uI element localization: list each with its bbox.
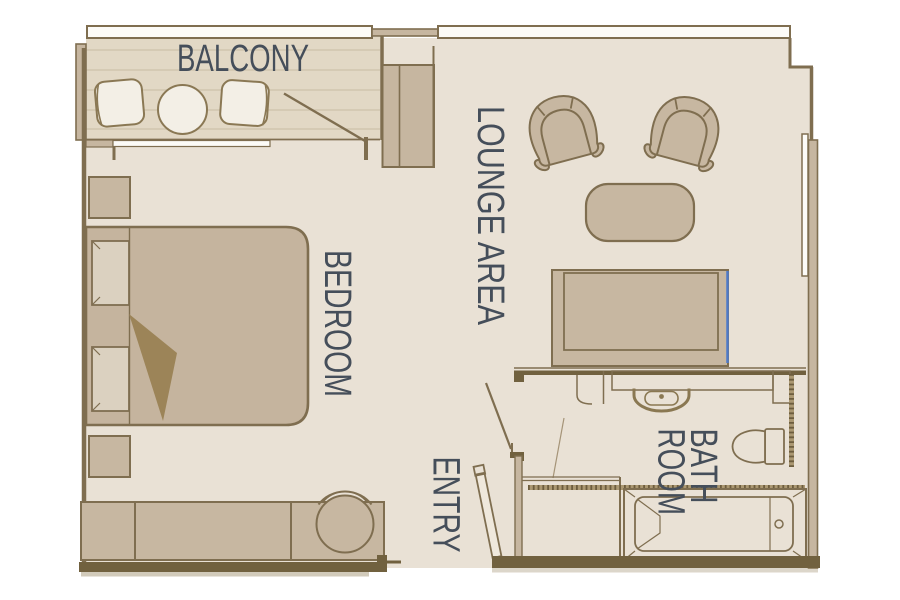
svg-text:LOUNGE AREA: LOUNGE AREA (469, 106, 511, 326)
svg-text:BEDROOM: BEDROOM (316, 250, 358, 397)
svg-text:BALCONY: BALCONY (177, 38, 309, 80)
svg-text:ENTRY: ENTRY (425, 457, 467, 553)
svg-text:BATHROOM: BATHROOM (650, 429, 725, 516)
